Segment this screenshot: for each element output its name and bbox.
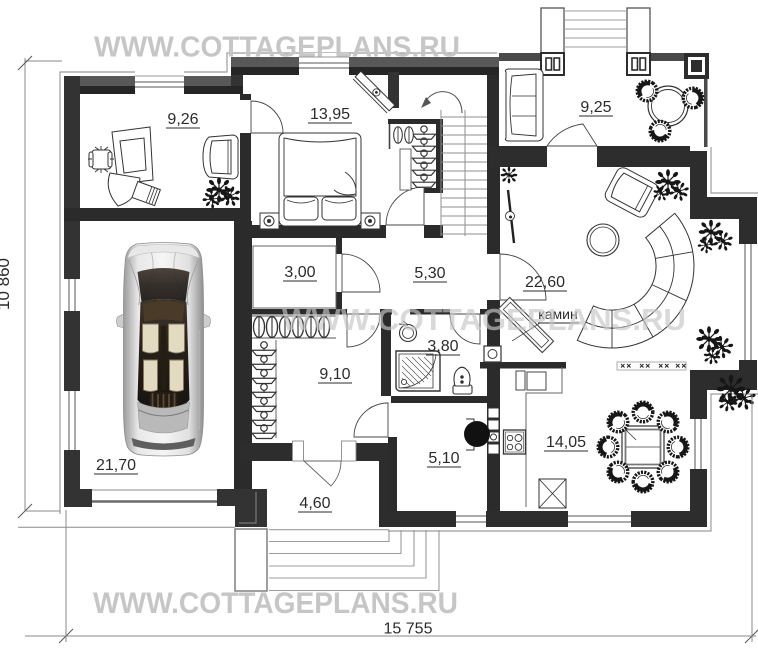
svg-text:9,26: 9,26 — [167, 111, 198, 128]
svg-text:WWW.COTTAGEPLANS.RU: WWW.COTTAGEPLANS.RU — [94, 32, 460, 64]
svg-text:3,80: 3,80 — [427, 338, 458, 355]
svg-text:22,60: 22,60 — [525, 274, 565, 291]
svg-text:9,25: 9,25 — [580, 99, 611, 116]
svg-text:10 860: 10 860 — [0, 258, 13, 310]
svg-text:15 755: 15 755 — [384, 621, 433, 638]
svg-text:3,00: 3,00 — [284, 264, 315, 281]
svg-text:WWW.COTTAGEPLANS.RU: WWW.COTTAGEPLANS.RU — [282, 302, 686, 337]
svg-text:5,10: 5,10 — [428, 450, 459, 467]
svg-text:4,60: 4,60 — [299, 495, 330, 512]
svg-text:21,70: 21,70 — [96, 457, 136, 474]
svg-text:14,05: 14,05 — [546, 434, 586, 451]
svg-text:9,10: 9,10 — [319, 366, 350, 383]
svg-text:5,30: 5,30 — [414, 265, 445, 282]
svg-text:13,95: 13,95 — [310, 106, 350, 123]
svg-text:WWW.COTTAGEPLANS.RU: WWW.COTTAGEPLANS.RU — [93, 587, 458, 620]
